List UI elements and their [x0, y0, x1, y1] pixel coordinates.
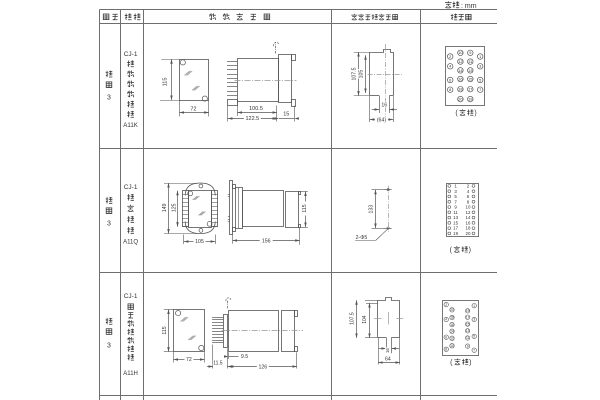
svg-text:115: 115 [163, 78, 169, 87]
svg-text:1: 1 [479, 54, 481, 59]
svg-text:A11H: A11H [123, 371, 138, 377]
svg-text:20: 20 [450, 308, 454, 312]
svg-text:9: 9 [469, 50, 471, 55]
svg-text:11: 11 [466, 336, 470, 340]
svg-text:5: 5 [479, 77, 481, 82]
svg-text:20: 20 [466, 231, 471, 236]
svg-text:16: 16 [385, 348, 390, 353]
svg-text:107.5: 107.5 [350, 312, 356, 325]
svg-text:1: 1 [473, 304, 475, 308]
svg-text:A11K: A11K [123, 122, 139, 129]
svg-text:5: 5 [473, 335, 475, 339]
svg-text:3: 3 [107, 95, 111, 102]
svg-text:125: 125 [171, 203, 177, 212]
svg-text:8: 8 [445, 348, 447, 352]
svg-text:: mm: : mm [461, 3, 477, 10]
svg-text:17: 17 [466, 315, 470, 319]
svg-text:3: 3 [107, 342, 111, 349]
svg-text:2: 2 [449, 54, 451, 59]
svg-text:12: 12 [458, 59, 462, 64]
svg-text:18: 18 [450, 316, 454, 320]
svg-text:3: 3 [479, 64, 481, 69]
svg-text:14: 14 [450, 330, 454, 334]
svg-text:19: 19 [468, 97, 472, 102]
svg-text:12: 12 [466, 210, 471, 215]
svg-text:9.5: 9.5 [241, 354, 248, 360]
svg-text:16: 16 [450, 323, 454, 327]
svg-text:72: 72 [186, 357, 192, 363]
svg-text:CJ-1: CJ-1 [124, 51, 138, 58]
svg-text:17: 17 [453, 226, 458, 231]
svg-text:16: 16 [458, 76, 462, 81]
svg-text:115: 115 [162, 326, 168, 334]
svg-text:13: 13 [468, 68, 472, 73]
svg-text:6: 6 [449, 77, 451, 82]
svg-text:115: 115 [302, 204, 308, 212]
svg-text:(64): (64) [377, 118, 386, 124]
svg-text:A11Q: A11Q [123, 240, 138, 246]
svg-text:19: 19 [466, 309, 470, 313]
svg-text:11: 11 [468, 59, 472, 64]
svg-text:10: 10 [450, 344, 454, 348]
svg-text:11.5: 11.5 [213, 360, 223, 366]
svg-text:4: 4 [445, 318, 447, 322]
svg-text:CJ-1: CJ-1 [124, 184, 138, 191]
svg-text:105: 105 [195, 239, 204, 245]
svg-text:126: 126 [258, 364, 267, 370]
svg-text:8: 8 [449, 87, 451, 92]
svg-text:9: 9 [467, 344, 469, 348]
svg-text:72: 72 [190, 107, 196, 113]
svg-text:13: 13 [453, 215, 458, 220]
svg-text:156: 156 [262, 239, 271, 245]
svg-text:15: 15 [466, 322, 470, 326]
svg-text:12: 12 [450, 337, 454, 341]
svg-text:100.5: 100.5 [249, 106, 263, 112]
svg-text:19: 19 [453, 231, 458, 236]
svg-text:16: 16 [466, 220, 471, 225]
svg-text:6: 6 [445, 335, 447, 339]
svg-text:7: 7 [473, 348, 475, 352]
svg-text:18: 18 [458, 87, 462, 92]
svg-text:149: 149 [162, 203, 168, 212]
svg-text:107.5: 107.5 [351, 67, 357, 80]
svg-text:122.5: 122.5 [245, 116, 259, 122]
svg-text:): ) [474, 110, 476, 117]
svg-text:16: 16 [381, 103, 387, 109]
svg-text:): ) [469, 247, 471, 254]
svg-text:): ) [469, 359, 471, 366]
svg-text:133: 133 [368, 205, 374, 214]
svg-text:18: 18 [466, 226, 471, 231]
svg-text:3: 3 [107, 221, 111, 228]
svg-text:13: 13 [466, 329, 470, 333]
svg-text:105: 105 [359, 70, 365, 79]
svg-text:17: 17 [468, 87, 472, 92]
svg-text:3: 3 [473, 318, 475, 322]
svg-text:10: 10 [466, 205, 471, 210]
svg-text:15: 15 [453, 220, 458, 225]
svg-text:15: 15 [468, 76, 472, 81]
svg-text:11: 11 [453, 210, 458, 215]
svg-text:2: 2 [445, 303, 447, 307]
svg-text:104: 104 [362, 315, 368, 324]
svg-text:CJ-1: CJ-1 [124, 293, 138, 300]
svg-text:15: 15 [283, 112, 289, 118]
svg-text:14: 14 [466, 215, 471, 220]
svg-text:64: 64 [385, 356, 391, 362]
svg-text:7: 7 [479, 87, 481, 92]
